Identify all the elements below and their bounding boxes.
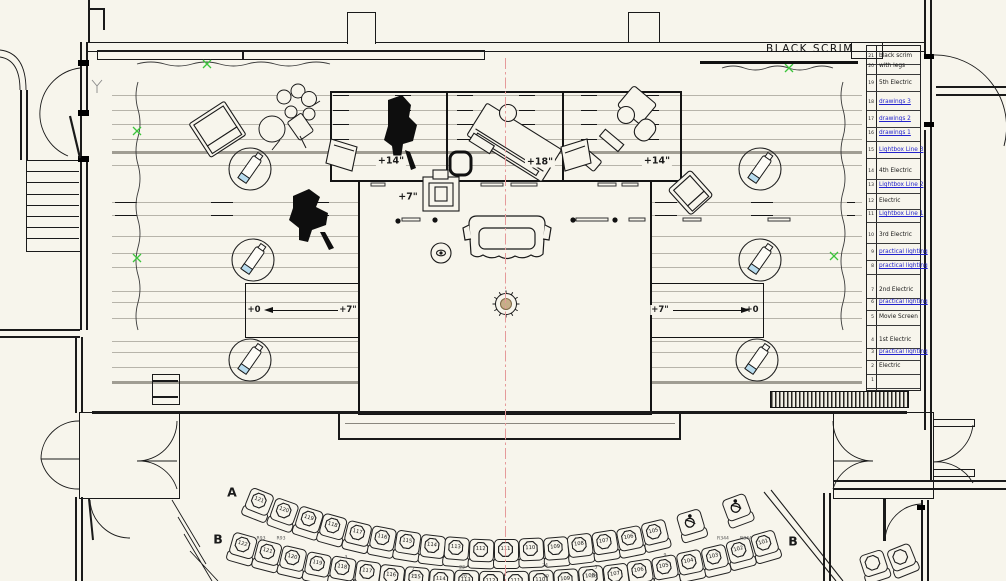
tiny-annotation: 9	[664, 554, 667, 559]
vestibule-right-doors	[933, 425, 973, 483]
seat-row-label: A	[227, 485, 237, 500]
center-marker-tick	[494, 309, 497, 311]
drum-kit	[259, 84, 320, 150]
monitor-wedge	[683, 218, 701, 221]
lineset-number: 1	[865, 379, 874, 384]
mic-stand-icon	[395, 218, 400, 223]
lineset-number: 3	[865, 351, 874, 356]
vestibule-left-doors	[137, 421, 177, 489]
center-marker-tick	[499, 313, 501, 316]
curtain-wavy-lines	[136, 62, 845, 330]
center-marker-tick	[494, 297, 497, 299]
seat: 110	[527, 569, 554, 581]
lineset-number: 4	[865, 339, 874, 344]
lineset-number: 5	[865, 316, 874, 321]
lineset-label[interactable]: practical lighting	[879, 250, 928, 256]
tiny-annotation: 26	[461, 575, 467, 580]
lineset-label: 2nd Electric	[879, 288, 913, 294]
spike-mark-icon	[830, 252, 838, 260]
door-leaf	[70, 116, 80, 158]
tiny-annotation: 24	[542, 564, 548, 569]
center-marker-tick	[515, 309, 518, 311]
tiny-annotation: 3	[345, 556, 348, 561]
tiny-annotation: 29	[543, 575, 549, 580]
lineset-number: 11	[865, 213, 874, 218]
lineset-number: 17	[865, 118, 874, 123]
lineset-row-separator	[867, 274, 920, 275]
lineset-label: Movie Screen	[879, 315, 918, 321]
stool	[450, 152, 471, 175]
lineset-row-separator	[867, 243, 920, 244]
lineset-label: 4th Electric	[879, 169, 912, 175]
ramp-left-arrowhead-icon	[264, 307, 273, 313]
lineset-label[interactable]: Lightbox Line 3	[879, 148, 923, 154]
schedule-frame	[920, 45, 921, 391]
organ-bench	[600, 129, 624, 151]
ramp-right-arrowhead-icon	[741, 307, 750, 313]
lineset-number: 8	[865, 265, 874, 270]
tiny-annotation: 23	[459, 566, 465, 571]
lineset-row-separator	[867, 209, 920, 210]
lineset-label: with legs	[879, 64, 905, 70]
seat: 112	[478, 570, 504, 581]
tiny-annotation: R344	[740, 537, 752, 542]
centerline	[505, 58, 506, 581]
monitor-wedge	[371, 183, 385, 186]
lineset-number: 19	[865, 82, 874, 87]
monitor-wedge	[629, 218, 645, 221]
lineset-row-separator	[867, 110, 920, 111]
lineset-label[interactable]: practical lighting	[879, 264, 928, 270]
lineset-number: 15	[865, 149, 874, 154]
grand-piano	[467, 103, 562, 182]
north-symbol	[92, 80, 102, 93]
corner-curve	[0, 50, 26, 90]
lineset-number: 7	[865, 289, 874, 294]
center-marker-tick	[511, 313, 513, 316]
performer	[618, 107, 635, 124]
aisle-steps	[172, 500, 218, 581]
aisle-wall	[764, 490, 843, 581]
ramp-left-high-label: +7"	[338, 305, 357, 315]
lineset-label: 5th Electric	[879, 81, 912, 87]
chair-on-riser	[423, 170, 459, 211]
monitor-wedge	[768, 218, 790, 221]
performer	[500, 105, 517, 122]
center-marker-tick	[511, 292, 513, 295]
seat: 112	[468, 537, 495, 568]
instrument-silhouette	[289, 189, 334, 250]
lineset-row-separator	[867, 179, 920, 180]
lineset-number: 12	[865, 200, 874, 205]
lineset-label: 1st Electric	[879, 338, 911, 344]
seat: 111	[493, 538, 519, 568]
ramp-left-arrow	[268, 310, 338, 311]
lineset-row-separator	[867, 141, 920, 142]
vestibule-left-doors	[41, 421, 79, 489]
lighting-fixture-icon	[745, 342, 772, 374]
monitor-wedge	[511, 183, 537, 186]
lighting-fixture-icon	[238, 151, 265, 183]
spike-mark-icon	[133, 254, 141, 262]
eye-stool	[431, 243, 451, 263]
lineset-number: 21	[865, 55, 874, 60]
lineset-label[interactable]: Lightbox Line 1	[879, 212, 923, 218]
lineset-label[interactable]: practical lighting	[879, 350, 928, 356]
ramp-right-high-label: +7"	[650, 305, 669, 315]
decor-layer	[0, 0, 1006, 581]
seat-number: 112	[469, 546, 492, 552]
seat: 118	[326, 554, 357, 581]
lineset-row-separator	[867, 222, 920, 223]
ramp-left-low-label: +0	[246, 305, 261, 315]
lineset-row-separator	[867, 260, 920, 261]
lineset-number: 20	[865, 65, 874, 70]
tiny-annotation: R93	[276, 537, 285, 542]
lighting-fixture-icon	[241, 242, 268, 274]
tiny-annotation: 25	[411, 575, 417, 580]
seat: 116	[377, 562, 406, 581]
lineset-row-separator	[867, 193, 920, 194]
lineset-row-separator	[867, 74, 920, 75]
lineset-number: 13	[865, 184, 874, 189]
seat: 113	[442, 535, 470, 567]
monitor-wedge	[598, 183, 616, 186]
mic-stand-icon	[612, 217, 617, 222]
spike-mark-icon	[203, 60, 211, 68]
seat: 110	[517, 537, 544, 568]
black-scrim-label: BLACK SCRIM	[766, 43, 854, 55]
tiny-annotation: R93	[256, 537, 265, 542]
tiny-annotation: R344	[717, 537, 729, 542]
stage-ground-plan: { "drawing": { "scrim_label": "BLACK SCR…	[0, 0, 1006, 581]
seat-row-label: B	[213, 532, 223, 547]
tiny-annotation: 28	[591, 575, 597, 580]
monitor-wedge	[576, 218, 608, 221]
monitor-wedge	[622, 183, 638, 186]
lineset-label[interactable]: practical lighting	[879, 300, 928, 306]
curtain-wavy-line	[136, 82, 140, 330]
ramp-right-arrow	[673, 310, 741, 311]
seat: 111	[503, 570, 530, 581]
lineset-label[interactable]: drawings 1	[879, 131, 911, 137]
lineset-number: 18	[865, 101, 874, 106]
armchair	[189, 101, 246, 157]
lineset-number: 16	[865, 132, 874, 137]
lineset-row-separator	[867, 127, 920, 128]
center-marker-tick	[515, 297, 518, 299]
lighting-fixture-icon	[748, 242, 775, 274]
center-marker-tick	[499, 292, 501, 295]
lineset-row-separator	[867, 374, 920, 375]
black-scrim-line	[700, 61, 858, 64]
door-arc	[885, 504, 921, 540]
monitor-wedge	[481, 183, 503, 186]
door-arc	[90, 500, 130, 538]
lineset-row-separator	[867, 325, 920, 326]
lineset-row-separator	[867, 360, 920, 361]
lineset-number: 6	[865, 301, 874, 306]
lineset-label[interactable]: drawings 2	[879, 117, 911, 123]
lineset-label[interactable]: Lightbox Line 2	[879, 183, 923, 189]
lineset-row-separator	[867, 388, 920, 389]
platform-height-label-left: +14"	[376, 156, 406, 167]
lineset-label: 3rd Electric	[879, 233, 912, 239]
schedule-frame	[876, 45, 877, 391]
vestibule-right-doors	[833, 421, 873, 489]
lighting-fixture-icon	[748, 151, 775, 183]
schedule-frame	[866, 45, 921, 46]
seat: 114	[427, 567, 455, 581]
lineset-label[interactable]: drawings 3	[879, 100, 911, 106]
lineset-row-separator	[867, 158, 920, 159]
curtain-wavy-line	[841, 82, 845, 330]
seat-number: 114	[429, 576, 452, 581]
lineset-number: 14	[865, 170, 874, 175]
curtain-wavy-line	[722, 66, 833, 70]
lineset-number: 10	[865, 234, 874, 239]
lineset-row-separator	[867, 91, 920, 92]
lighting-fixture-icon	[238, 342, 265, 374]
platform-height-label-thrust: +7"	[396, 192, 420, 203]
mic-stand-icon	[570, 217, 575, 222]
door-arc	[933, 55, 1006, 146]
tiny-annotation: 5	[595, 566, 598, 571]
monitor-wedge	[402, 218, 420, 221]
lineset-label: Electric	[879, 364, 900, 370]
lineset-label: Electric	[879, 199, 900, 205]
sofa	[463, 216, 551, 259]
lineset-label: black scrim	[879, 54, 912, 60]
mic-stand-icon	[432, 217, 437, 222]
seat-row-label: B	[788, 534, 798, 549]
spike-mark-icon	[785, 64, 793, 72]
corner-curve	[0, 57, 20, 90]
platform-height-label-center: +18"	[525, 157, 555, 168]
lineset-number: 2	[865, 365, 874, 370]
seat: 109	[552, 567, 580, 581]
center-marker-dot	[501, 299, 512, 310]
seat-number: 109	[553, 575, 576, 581]
curtain-wavy-line	[137, 62, 330, 66]
schedule-frame	[866, 390, 921, 391]
lineset-number: 9	[865, 251, 874, 256]
lineset-row-separator	[867, 310, 920, 311]
door-arc	[40, 68, 80, 156]
tiny-annotation: 7	[412, 568, 415, 573]
platform-height-label-right: +14"	[642, 156, 672, 167]
